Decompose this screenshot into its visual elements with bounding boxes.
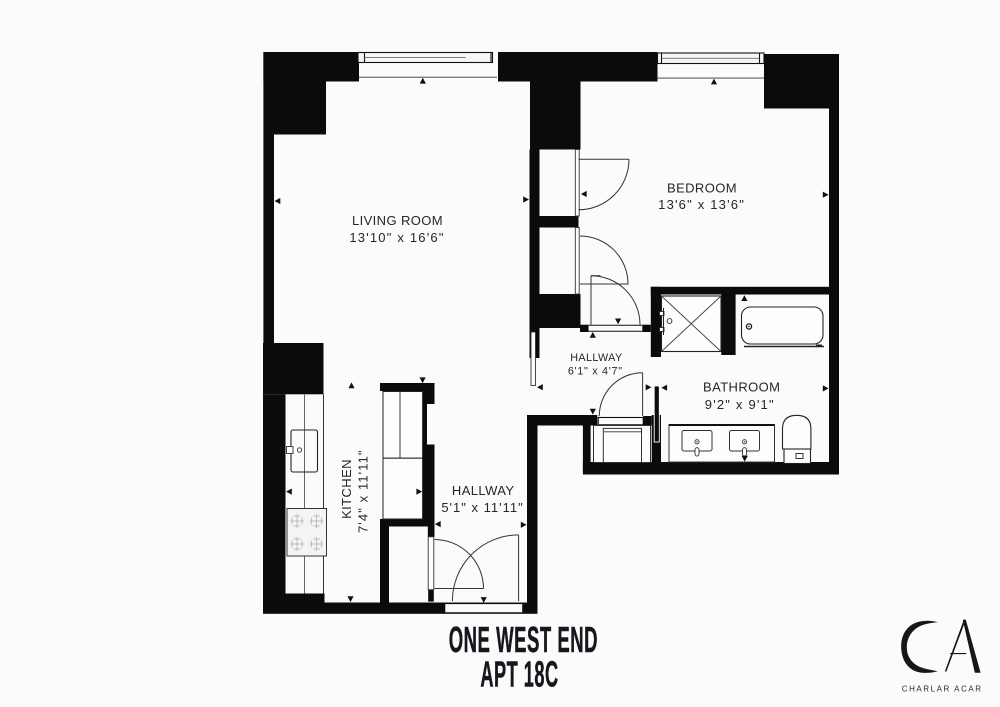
svg-text:HALLWAY: HALLWAY <box>570 352 622 364</box>
svg-text:LIVING ROOM: LIVING ROOM <box>352 213 443 228</box>
svg-text:6'1" x 4'7": 6'1" x 4'7" <box>568 365 623 377</box>
svg-text:HALLWAY: HALLWAY <box>452 483 515 498</box>
svg-text:KITCHEN: KITCHEN <box>339 459 354 519</box>
svg-text:BATHROOM: BATHROOM <box>703 380 780 395</box>
svg-text:9'2" x 9'1": 9'2" x 9'1" <box>705 397 775 412</box>
svg-text:13'6" x 13'6": 13'6" x 13'6" <box>658 197 745 212</box>
svg-text:BEDROOM: BEDROOM <box>667 180 737 195</box>
svg-text:APT 18C: APT 18C <box>480 655 558 695</box>
svg-text:5'1" x 11'11": 5'1" x 11'11" <box>441 500 523 515</box>
svg-text:7'4" x 11'11": 7'4" x 11'11" <box>356 449 371 533</box>
svg-text:CHARLAR ACAR: CHARLAR ACAR <box>902 685 983 694</box>
svg-text:13'10" x 16'6": 13'10" x 16'6" <box>349 230 444 245</box>
